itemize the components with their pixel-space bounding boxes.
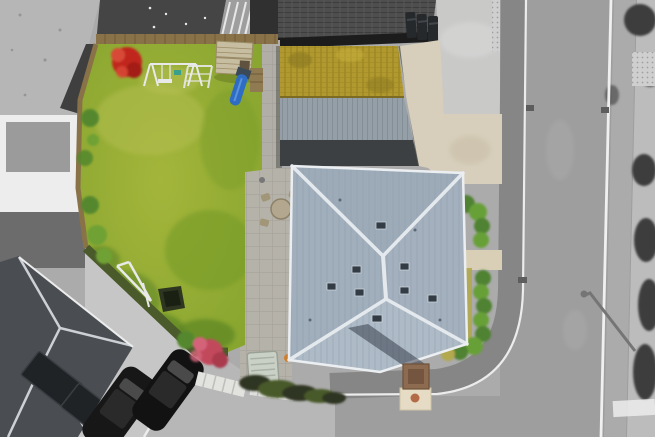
bin-2 (417, 14, 428, 40)
garden-net-inner (163, 290, 181, 307)
road-stain-1 (546, 120, 574, 180)
chimney-pot (411, 394, 420, 403)
road-stain-2 (563, 310, 587, 350)
bin-3 (428, 16, 438, 42)
drain-3 (518, 277, 527, 283)
patio-pot (259, 177, 265, 183)
garage-dark-eave (280, 140, 419, 166)
garden-table (271, 199, 291, 219)
bin-1 (405, 12, 417, 39)
drain-1 (526, 105, 534, 111)
lamp-post-shadow-head (581, 291, 588, 298)
wheelie-bins (405, 12, 438, 42)
tactile-crossing-right-dots (632, 52, 655, 86)
concrete-light-patch (440, 22, 500, 58)
pallet (250, 68, 263, 92)
drain-2 (601, 107, 609, 113)
crossing-mark (613, 399, 655, 417)
garden-shed (214, 41, 256, 84)
sidewalk-right (615, 0, 625, 437)
aerial-photo-canvas (0, 0, 655, 437)
garden-toy (174, 70, 181, 75)
garage (280, 46, 419, 166)
chimney-inner (408, 369, 424, 384)
flat-roof (6, 122, 70, 172)
driveway-stain (450, 136, 490, 164)
aerial-photo (0, 0, 655, 437)
garage-metal-corrugation (280, 98, 413, 140)
